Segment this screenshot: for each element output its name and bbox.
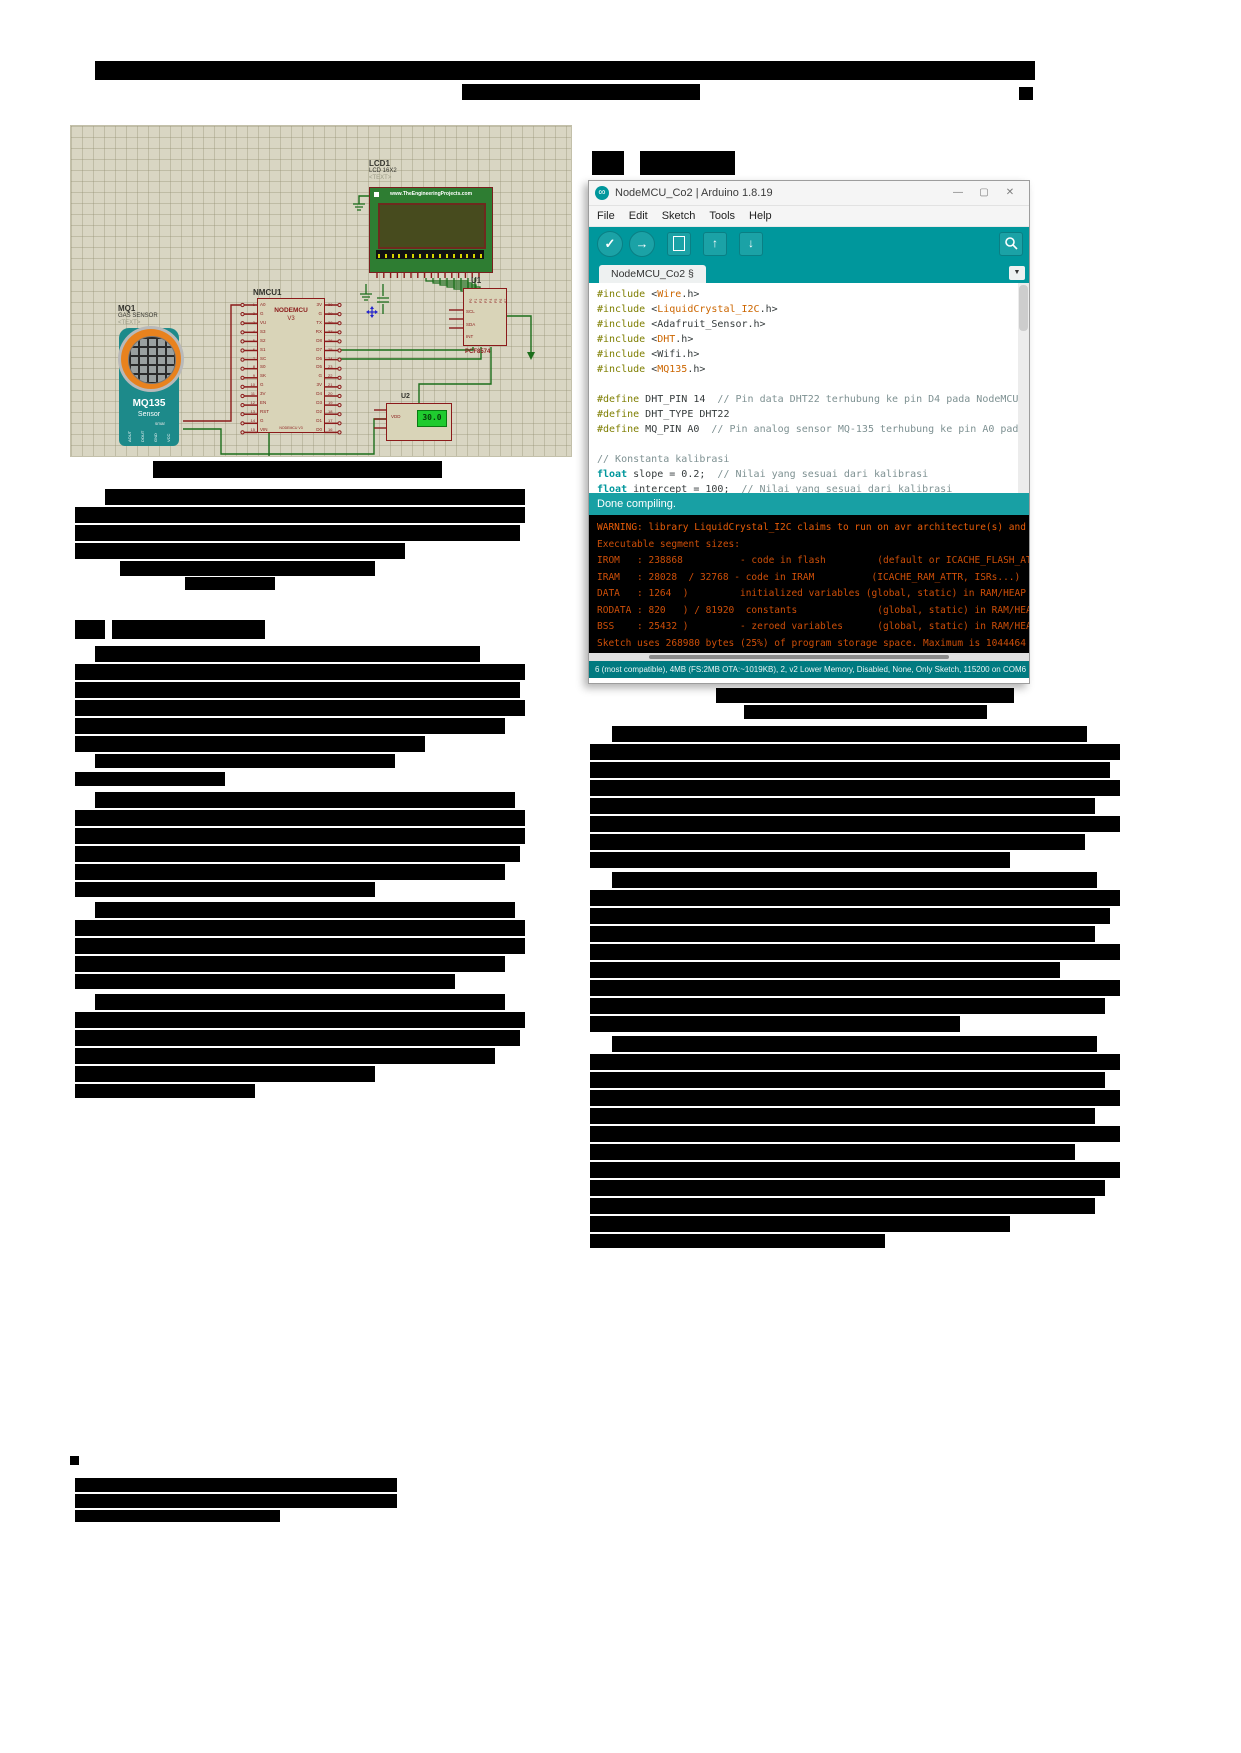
- lcd-pin-mark: [378, 254, 380, 258]
- redacted-text: [590, 962, 1060, 978]
- pin-label: 14: [246, 418, 255, 423]
- redacted-text: [590, 1072, 1105, 1088]
- menu-help[interactable]: Help: [749, 210, 772, 222]
- menu-bar: FileEditSketchToolsHelp: [589, 206, 1029, 227]
- redacted-text: [75, 882, 375, 897]
- pin-label: G: [299, 311, 322, 316]
- console-line: Sketch uses 268980 bytes (25%) of progra…: [597, 636, 1021, 653]
- close-button[interactable]: ✕: [997, 184, 1023, 202]
- code-line: float intercept = 100; // Nilai yang ses…: [597, 482, 1029, 493]
- document-icon: [673, 236, 685, 251]
- pin-label: S0: [260, 364, 269, 369]
- lcd-pin-mark: [473, 254, 475, 258]
- console-output[interactable]: WARNING: library LiquidCrystal_I2C claim…: [589, 515, 1029, 653]
- nodemcu-right-pin-numbers: 302928272625242322212019181716: [328, 302, 332, 432]
- console-line: BSS : 25432 ) - zeroed variables (global…: [597, 619, 1021, 636]
- pin-label: 27: [328, 329, 332, 334]
- redacted-text: [75, 620, 105, 639]
- paper-page: LCD1 LCD 16X2 <TEXT> www.TheEngineeringP…: [0, 0, 1241, 1753]
- redacted-text: [1019, 87, 1033, 100]
- pin-label: 28: [328, 320, 332, 325]
- arduino-app-icon: ∞: [595, 186, 609, 200]
- redacted-text: [75, 1510, 280, 1522]
- pin-label: S2: [260, 338, 269, 343]
- redacted-text: [75, 974, 455, 989]
- tab-nodemcu-co2[interactable]: NodeMCU_Co2 §: [599, 265, 706, 283]
- nodemcu-right-pin-labels: 3VGTXRXD8D7D6D5G3VD4D3D2D1D0: [299, 302, 322, 432]
- pin-label: D8: [299, 338, 322, 343]
- u2-sensor-module: VDD 30.0: [386, 403, 452, 441]
- redacted-text: [640, 151, 735, 175]
- upload-button[interactable]: →: [629, 231, 655, 257]
- redacted-text: [75, 682, 520, 698]
- lcd-reference-label: LCD1 LCD 16X2 <TEXT>: [369, 159, 397, 182]
- lcd-pin-mark: [426, 254, 428, 258]
- pin-label: 16: [328, 427, 332, 432]
- pin-label: RST: [260, 409, 269, 414]
- lcd-pin-mark: [419, 254, 421, 258]
- pin-label: 3V: [299, 382, 322, 387]
- mq135-small-label: smar: [155, 421, 165, 426]
- menu-edit[interactable]: Edit: [629, 210, 648, 222]
- console-line: IROM : 238868 - code in flash (default o…: [597, 553, 1021, 570]
- redacted-text: [75, 1494, 397, 1508]
- pin-label: VU: [260, 320, 269, 325]
- pin-label: 26: [328, 338, 332, 343]
- redacted-text: [75, 772, 225, 786]
- console-line: DATA : 1264 ) initialized variables (glo…: [597, 586, 1021, 603]
- open-button[interactable]: ↑: [703, 232, 727, 256]
- lcd-pin-mark: [480, 254, 482, 258]
- redacted-text: [95, 902, 515, 918]
- redacted-text: [590, 890, 1120, 906]
- redacted-text: [590, 1198, 1095, 1214]
- pin-label: VIN: [260, 427, 269, 432]
- mq135-sublabel: Sensor: [119, 411, 179, 418]
- pin-label: 8: [246, 364, 255, 369]
- lcd-brand-text: www.TheEngineeringProjects.com: [370, 191, 492, 197]
- redacted-text: [590, 1162, 1120, 1178]
- redacted-text: [590, 852, 1010, 868]
- tab-modified-marker: §: [688, 268, 694, 280]
- console-line: RODATA : 820 ) / 81920 constants (global…: [597, 603, 1021, 620]
- pin-label: RX: [299, 329, 322, 334]
- mq135-orange-ring: [121, 329, 181, 389]
- redacted-text: [75, 828, 525, 844]
- lcd-pin-mark: [453, 254, 455, 258]
- lcd-pin-mark: [432, 254, 434, 258]
- code-line: #define DHT_PIN 14 // Pin data DHT22 ter…: [597, 392, 1029, 407]
- pin-label: 19: [328, 400, 332, 405]
- redacted-text: [120, 561, 375, 576]
- redacted-text: [105, 489, 525, 505]
- redacted-text: [590, 834, 1085, 850]
- redacted-text: [590, 926, 1095, 942]
- arduino-ide-window: ∞ NodeMCU_Co2 | Arduino 1.8.19 — ▢ ✕ Fil…: [588, 180, 1030, 684]
- redacted-text: [462, 84, 700, 100]
- console-hscroll-thumb[interactable]: [649, 655, 949, 659]
- redacted-text: [612, 1036, 1097, 1052]
- lcd-screen: [378, 203, 486, 249]
- proteus-schematic-figure: LCD1 LCD 16X2 <TEXT> www.TheEngineeringP…: [70, 125, 572, 457]
- u1-top-pin-label: P3: [484, 299, 488, 303]
- redacted-text: [95, 646, 480, 662]
- redacted-text: [95, 994, 505, 1010]
- pin-label: 18: [328, 409, 332, 414]
- pin-label: INT: [466, 334, 475, 339]
- pin-label: 15: [246, 427, 255, 432]
- console-hscrollbar[interactable]: [589, 653, 1029, 661]
- code-line: #define DHT_TYPE DHT22: [597, 407, 1029, 422]
- redacted-text: [75, 736, 425, 752]
- redacted-text: [590, 998, 1105, 1014]
- tab-bar: NodeMCU_Co2 § ▼: [589, 261, 1029, 283]
- menu-file[interactable]: File: [597, 210, 615, 222]
- redacted-text: [95, 792, 515, 808]
- u1-top-pin-label: P6: [499, 299, 503, 303]
- u1-left-pin-labels: SCLSDAINT: [466, 309, 475, 339]
- bidirectional-marker-icon: [365, 305, 379, 319]
- code-editor[interactable]: #include <Wire.h>#include <LiquidCrystal…: [589, 283, 1029, 493]
- pin-label: D4: [299, 391, 322, 396]
- pin-label: SK: [260, 373, 269, 378]
- redacted-text: [592, 151, 624, 175]
- lcd-pin-strip: [376, 250, 484, 259]
- redacted-text: [590, 1016, 960, 1032]
- redacted-text: [70, 1456, 79, 1465]
- redacted-text: [75, 920, 525, 936]
- pin-label: EN: [260, 400, 269, 405]
- pin-label: 30: [328, 302, 332, 307]
- redacted-text: [75, 1066, 375, 1082]
- redacted-text: [744, 705, 987, 719]
- pin-label: 2: [246, 311, 255, 316]
- pin-label: 25: [328, 347, 332, 352]
- save-button[interactable]: ↓: [739, 232, 763, 256]
- redacted-text: [590, 944, 1120, 960]
- lcd-pin-mark: [405, 254, 407, 258]
- pin-label: 13: [246, 409, 255, 414]
- u1-top-pin-label: P2: [479, 299, 483, 303]
- pin-label: G: [260, 311, 269, 316]
- code-line: #include <DHT.h>: [597, 332, 1029, 347]
- pin-label: 7: [246, 356, 255, 361]
- redacted-text: [75, 938, 525, 954]
- redacted-text: [590, 980, 1120, 996]
- redacted-text: [590, 908, 1110, 924]
- tab-label: NodeMCU_Co2: [611, 268, 685, 280]
- lcd-pin-mark: [439, 254, 441, 258]
- redacted-text: [75, 1478, 397, 1492]
- gas-sensor-reference-label: MQ1 GAS SENSOR <TEXT>: [118, 304, 158, 327]
- magnifier-icon: [1004, 236, 1018, 250]
- pin-label: 21: [328, 382, 332, 387]
- pin-label: 12: [246, 400, 255, 405]
- minimize-button[interactable]: —: [945, 184, 971, 202]
- pin-label: 20: [328, 391, 332, 396]
- code-line: #include <LiquidCrystal_I2C.h>: [597, 302, 1029, 317]
- u2-display-readout: 30.0: [417, 410, 447, 427]
- pin-label: D7: [299, 347, 322, 352]
- pin-label: A0: [260, 302, 269, 307]
- console-line: Executable segment sizes:: [597, 537, 1021, 554]
- pin-label: 9: [246, 373, 255, 378]
- nodemcu-reference-label: NMCU1: [253, 288, 281, 297]
- maximize-button[interactable]: ▢: [971, 184, 997, 202]
- mq135-pin-label: GND: [153, 433, 158, 442]
- redacted-text: [75, 700, 525, 716]
- lcd-pin-mark: [392, 254, 394, 258]
- code-text: #include <Wire.h>#include <LiquidCrystal…: [597, 287, 1029, 493]
- editor-scrollbar[interactable]: [1018, 283, 1029, 493]
- pin-label: 3V: [260, 391, 269, 396]
- mq135-sensor-head: [118, 326, 184, 392]
- lcd-pin-mark: [446, 254, 448, 258]
- redacted-text: [75, 956, 505, 972]
- code-line: float slope = 0.2; // Nilai yang sesuai …: [597, 467, 1029, 482]
- redacted-text: [185, 577, 275, 590]
- redacted-text: [75, 846, 520, 862]
- window-title: NodeMCU_Co2 | Arduino 1.8.19: [615, 187, 945, 199]
- pin-label: SC: [260, 356, 269, 361]
- new-sketch-button[interactable]: [667, 232, 691, 256]
- redacted-text: [75, 718, 505, 734]
- pin-label: 11: [246, 391, 255, 396]
- nodemcu-left-pin-labels: A0GVUS3S2S1SCS0SKG3VENRSTGVIN: [260, 302, 269, 432]
- lcd-pin-mark: [398, 254, 400, 258]
- window-titlebar[interactable]: ∞ NodeMCU_Co2 | Arduino 1.8.19 — ▢ ✕: [589, 181, 1029, 206]
- redacted-text: [590, 780, 1120, 796]
- mq135-pin-label: AOUT: [127, 431, 132, 442]
- pin-label: 22: [328, 373, 332, 378]
- menu-sketch[interactable]: Sketch: [662, 210, 696, 222]
- lcd-16x2-module: www.TheEngineeringProjects.com: [369, 187, 493, 273]
- console-line: WARNING: library LiquidCrystal_I2C claim…: [597, 520, 1021, 537]
- redacted-text: [590, 1090, 1120, 1106]
- verify-button[interactable]: ✓: [597, 231, 623, 257]
- pin-label: 23: [328, 364, 332, 369]
- pin-label: 4: [246, 329, 255, 334]
- pin-label: 6: [246, 347, 255, 352]
- redacted-text: [75, 543, 405, 559]
- pin-label: 17: [328, 418, 332, 423]
- mq135-pin-label: DOUT: [140, 431, 145, 442]
- scrollbar-thumb[interactable]: [1019, 285, 1028, 331]
- code-line: #include <Wire.h>: [597, 287, 1029, 302]
- redacted-text: [590, 1126, 1120, 1142]
- code-line: [597, 377, 1029, 392]
- pin-label: 1: [246, 302, 255, 307]
- redacted-text: [590, 1054, 1120, 1070]
- menu-tools[interactable]: Tools: [709, 210, 735, 222]
- redacted-text: [590, 1180, 1105, 1196]
- toolbar: ✓ → ↑ ↓: [589, 227, 1029, 261]
- mq135-mesh: [128, 336, 176, 384]
- redacted-text: [75, 507, 525, 523]
- code-line: [597, 437, 1029, 452]
- pin-label: D6: [299, 356, 322, 361]
- pin-label: SDA: [466, 322, 475, 327]
- redacted-text: [590, 1144, 1075, 1160]
- pin-label: 5: [246, 338, 255, 343]
- redacted-text: [590, 816, 1120, 832]
- serial-monitor-button[interactable]: [999, 232, 1023, 256]
- redacted-text: [75, 864, 505, 880]
- pin-label: 10: [246, 382, 255, 387]
- code-line: // Konstanta kalibrasi: [597, 452, 1029, 467]
- u2-reference-label: U2: [401, 392, 410, 401]
- redacted-text: [95, 61, 1035, 80]
- pin-label: G: [260, 382, 269, 387]
- pin-label: D5: [299, 364, 322, 369]
- redacted-text: [590, 1216, 1010, 1232]
- code-line: #include <Adafruit_Sensor.h>: [597, 317, 1029, 332]
- pin-label: 24: [328, 356, 332, 361]
- u1-value-label: PCF8574: [465, 349, 490, 356]
- redacted-text: [612, 726, 1087, 742]
- redacted-text: [590, 798, 1095, 814]
- redacted-text: [716, 688, 1014, 703]
- pin-label: TX: [299, 320, 322, 325]
- pin-label: D2: [299, 409, 322, 414]
- lcd-pin-mark: [460, 254, 462, 258]
- pin-label: 3V: [299, 302, 322, 307]
- lcd-pin-mark: [385, 254, 387, 258]
- redacted-text: [590, 1108, 1095, 1124]
- pin-label: D1: [299, 418, 322, 423]
- redacted-text: [612, 872, 1097, 888]
- redacted-text: [75, 1048, 495, 1064]
- redacted-text: [75, 1012, 525, 1028]
- console-line: IRAM : 28028 / 32768 - code in IRAM (ICA…: [597, 570, 1021, 587]
- mq135-pin-label: VCC: [166, 434, 171, 442]
- nodemcu-left-pin-numbers: 123456789101112131415: [246, 302, 255, 432]
- u1-reference-label: U1: [471, 276, 481, 285]
- code-line: #include <Wifi.h>: [597, 347, 1029, 362]
- redacted-text: [95, 754, 395, 768]
- redacted-text: [590, 1234, 885, 1248]
- board-status-bar: 6 (most compatible), 4MB (FS:2MB OTA:~10…: [589, 661, 1029, 678]
- u1-top-pin-label: P7: [504, 299, 508, 303]
- redacted-text: [75, 525, 520, 541]
- pcf8574-chip: SCLSDAINT P0P1P2P3P4P5P6P7: [463, 288, 507, 346]
- redacted-text: [75, 810, 525, 826]
- lcd-pin-mark: [466, 254, 468, 258]
- pin-label: S1: [260, 347, 269, 352]
- compile-status-bar: Done compiling.: [589, 493, 1029, 515]
- lcd-pin-mark: [412, 254, 414, 258]
- redacted-text: [75, 1084, 255, 1098]
- u1-top-pin-label: P0: [469, 299, 473, 303]
- pin-label: G: [299, 373, 322, 378]
- redacted-text: [75, 1030, 520, 1046]
- redacted-text: [590, 744, 1120, 760]
- pin-label: SCL: [466, 309, 475, 314]
- u1-top-pin-label: P4: [489, 299, 493, 303]
- u1-top-pin-label: P1: [474, 299, 478, 303]
- redacted-text: [75, 664, 525, 680]
- code-line: #include <MQ135.h>: [597, 362, 1029, 377]
- redacted-text: [112, 620, 265, 639]
- pin-label: S3: [260, 329, 269, 334]
- u2-vdd-pin-label: VDD: [391, 414, 401, 419]
- pin-label: 3: [246, 320, 255, 325]
- mq135-label: MQ135: [119, 398, 179, 409]
- pin-label: D0: [299, 427, 322, 432]
- tab-list-button[interactable]: ▼: [1009, 266, 1025, 280]
- pin-label: 29: [328, 311, 332, 316]
- pin-label: D3: [299, 400, 322, 405]
- redacted-text: [153, 461, 442, 478]
- redacted-text: [590, 762, 1110, 778]
- u1-top-pin-label: P5: [494, 299, 498, 303]
- pin-label: G: [260, 418, 269, 423]
- code-line: #define MQ_PIN A0 // Pin analog sensor M…: [597, 422, 1029, 437]
